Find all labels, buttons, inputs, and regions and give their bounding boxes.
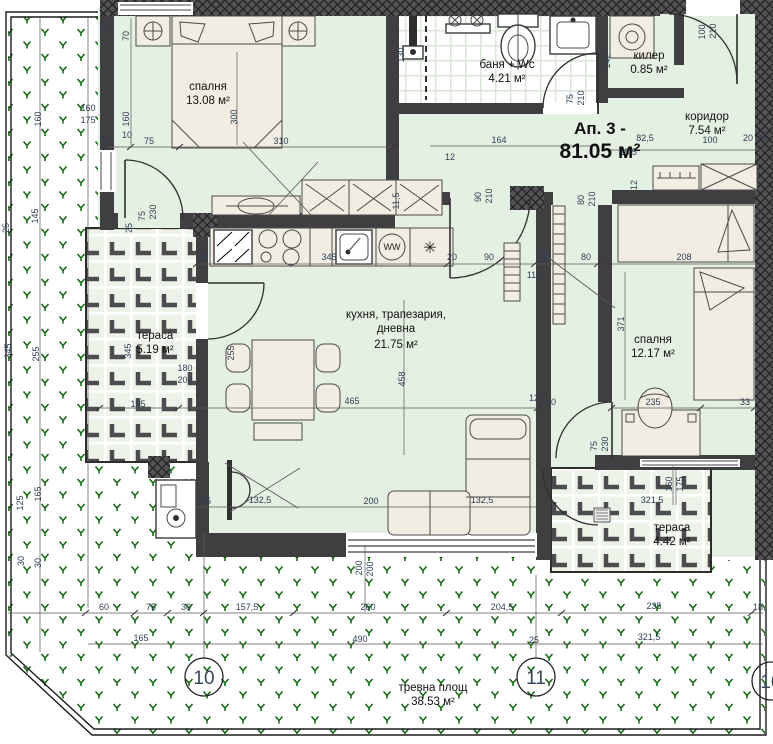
room-area-living: 21.75 м² bbox=[374, 339, 418, 351]
sofa-bottom bbox=[388, 491, 470, 535]
radiator bbox=[504, 243, 520, 301]
room-label2-living: дневна bbox=[377, 323, 416, 335]
dimension-label: 25 bbox=[757, 133, 767, 143]
plot-marker-number: 10 bbox=[193, 668, 214, 689]
dimension-label: 458 bbox=[397, 371, 407, 386]
sink-icon bbox=[550, 10, 596, 54]
dimension-label: 200 bbox=[177, 375, 192, 385]
corridor-furniture bbox=[653, 164, 757, 190]
dimension-label: 132,5 bbox=[249, 495, 272, 505]
dimension-label: 125 bbox=[15, 495, 25, 510]
floor-plan-page: 2570160510753103007523025130164752101002… bbox=[0, 0, 773, 744]
dimension-label: 25 bbox=[1, 223, 11, 233]
room-label-bathroom: баня + Wc bbox=[479, 59, 534, 71]
dimension-label: 75 bbox=[146, 602, 156, 612]
coffee-table bbox=[254, 423, 302, 440]
dimension-label: 75 bbox=[144, 136, 154, 146]
dimension-label: 11,5 bbox=[391, 193, 401, 210]
dimension-label: 210 bbox=[587, 191, 597, 206]
dimension-label: 208 bbox=[676, 252, 691, 262]
dimension-label: 235 bbox=[645, 397, 660, 407]
room-label-closet: килер bbox=[634, 50, 665, 62]
dimension-label: 310 bbox=[273, 136, 288, 146]
room-label-lawn: тревна площ bbox=[398, 682, 468, 694]
room-area-lawn: 38.53 м² bbox=[411, 696, 455, 708]
dimension-label: 33 bbox=[740, 397, 750, 407]
dimension-label: 164 bbox=[491, 135, 506, 145]
room-area-bedroom-1: 13.08 м² bbox=[186, 95, 230, 107]
dimension-label: 490 bbox=[352, 634, 367, 644]
dimension-label: 145 bbox=[30, 208, 40, 223]
dimension-label: 40 bbox=[541, 252, 551, 262]
dimension-label: 10 bbox=[122, 130, 132, 140]
dimension-label: 321,5 bbox=[641, 495, 664, 505]
dimension-label: 345 bbox=[123, 343, 133, 358]
dimension-label: 260 bbox=[360, 602, 375, 612]
dimension-label: 160 bbox=[80, 103, 95, 113]
room-label-living: кухня, трапезария, bbox=[346, 309, 446, 321]
room-label-terrace-south: тераса bbox=[654, 522, 691, 534]
dimension-label: 345 bbox=[321, 252, 336, 262]
dimension-label: 75 bbox=[137, 211, 147, 221]
room-label-terrace-west: тераса bbox=[137, 330, 174, 342]
apartment-area: 81.05 м² bbox=[560, 140, 641, 163]
dimension-label: 12 bbox=[629, 180, 639, 190]
dimension-label: 5 bbox=[100, 136, 105, 146]
room-area-terrace-south: 4.42 м² bbox=[653, 536, 690, 548]
dimension-label: 100 bbox=[697, 24, 707, 39]
dimension-label: 465 bbox=[344, 396, 359, 406]
chair bbox=[316, 344, 340, 372]
room-label-bedroom-2: спалня bbox=[634, 334, 672, 346]
dimension-label: 200 bbox=[363, 496, 378, 506]
room-area-bathroom: 4.21 м² bbox=[488, 73, 525, 85]
dimension-label: 25 bbox=[198, 252, 208, 262]
dimension-label: 230 bbox=[148, 204, 158, 219]
dimension-label: 25 bbox=[529, 635, 539, 645]
dimension-label: 200 bbox=[354, 560, 364, 575]
sink-kitchen-icon bbox=[336, 230, 372, 264]
room-area-closet: 0.85 м² bbox=[630, 64, 667, 76]
dimension-label: 90 bbox=[484, 252, 494, 262]
dimension-label: 165 bbox=[33, 486, 43, 501]
dimension-label: 60 bbox=[99, 602, 109, 612]
dimension-label: 371 bbox=[616, 316, 626, 331]
dimension-label: 70 bbox=[121, 31, 131, 41]
dimension-label: 30 bbox=[16, 556, 26, 566]
room-area-bedroom-2: 12.17 м² bbox=[631, 348, 675, 360]
dimension-label: 300 bbox=[229, 109, 239, 124]
dimension-label: 20 bbox=[743, 133, 753, 143]
dimension-label: 12 bbox=[445, 152, 455, 162]
dimension-label: 230 bbox=[600, 436, 610, 451]
dimension-label: 25 bbox=[124, 223, 134, 233]
dimension-label: 345 bbox=[3, 343, 13, 358]
plot-marker-number: 10 bbox=[760, 672, 773, 693]
fridge-icon bbox=[214, 230, 252, 264]
dishwasher-icon: ✳ bbox=[423, 238, 436, 257]
dimension-label: 200 bbox=[365, 561, 375, 576]
sofa-pillow bbox=[470, 419, 526, 439]
room-area-corridor: 7.54 м² bbox=[688, 125, 725, 137]
dimension-label: 204,5 bbox=[491, 602, 514, 612]
room-label-bedroom-1: спалня bbox=[189, 81, 227, 93]
dimension-label: 112 bbox=[527, 270, 541, 280]
dimension-label: 60 bbox=[546, 397, 556, 407]
dimension-label: 130 bbox=[396, 47, 406, 62]
room-label-corridor: коридор bbox=[685, 111, 729, 123]
dimension-label: 75 bbox=[589, 441, 599, 451]
dimension-label: 30 bbox=[33, 558, 43, 568]
dimension-label: 210 bbox=[484, 188, 494, 203]
apartment-title: Ап. 3 - bbox=[574, 119, 626, 138]
dimension-label: 210 bbox=[576, 90, 586, 105]
dimension-label: 18 bbox=[753, 602, 763, 612]
dimension-label: 235 bbox=[646, 601, 661, 611]
dimension-label: 255 bbox=[31, 346, 41, 361]
plot-marker-number: 11 bbox=[526, 668, 546, 689]
shower-icon bbox=[409, 16, 417, 48]
dimension-label: 25 bbox=[99, 22, 109, 32]
dimension-label: 90 bbox=[473, 192, 483, 202]
washing-machine-label: WW bbox=[384, 242, 401, 252]
dimension-label: 75 bbox=[565, 94, 575, 104]
floor-plan-drawing: 2570160510753103007523025130164752101002… bbox=[0, 0, 773, 744]
dimension-label: 175 bbox=[80, 115, 95, 125]
dimension-label: 210 bbox=[708, 23, 718, 38]
dimension-label: 80 bbox=[576, 195, 586, 205]
dimension-label: 175 bbox=[675, 476, 685, 491]
dimension-label: 25 bbox=[201, 496, 211, 506]
dimension-label: 12 bbox=[529, 393, 539, 403]
dimension-label: 157,5 bbox=[236, 602, 259, 612]
dimension-label: 20 bbox=[447, 252, 457, 262]
dimension-label: 255 bbox=[226, 345, 236, 360]
dimension-label: 142 bbox=[602, 53, 612, 68]
dimension-label: 180 bbox=[177, 363, 192, 373]
dimension-label: 160 bbox=[664, 476, 674, 491]
dimension-label: 165 bbox=[133, 633, 148, 643]
dimension-label: 30 bbox=[181, 602, 191, 612]
dimension-label: 160 bbox=[33, 111, 43, 126]
shaft bbox=[553, 206, 565, 324]
dimension-label: 160 bbox=[121, 111, 131, 126]
single-bed-right bbox=[694, 268, 754, 400]
room-area-terrace-west: 5.19 м² bbox=[136, 344, 173, 356]
dimension-label: 155 bbox=[130, 399, 145, 409]
dimension-label: 132,5 bbox=[471, 495, 494, 505]
dimension-label: 80 bbox=[581, 252, 591, 262]
dimension-label: 321,5 bbox=[638, 632, 661, 642]
downspout bbox=[156, 480, 196, 538]
